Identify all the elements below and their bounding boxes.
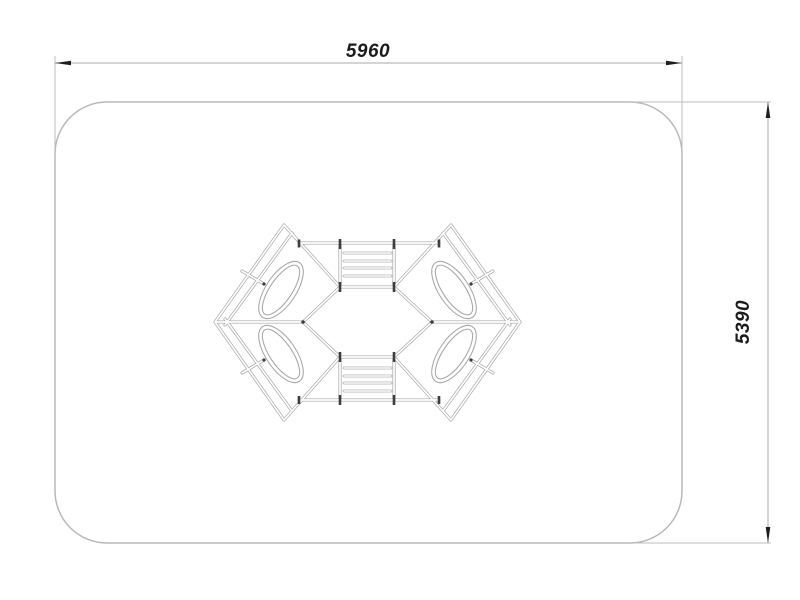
- climbing-structure-plan: [215, 225, 520, 420]
- opening-upper-right: [423, 254, 485, 325]
- safety-zone-outline: [55, 102, 682, 543]
- technical-drawing-canvas: 5960 5390: [0, 0, 800, 600]
- opening-upper-left: [250, 254, 312, 325]
- arrow-right-icon: [666, 61, 682, 66]
- opening-lower-right: [423, 318, 485, 389]
- arrow-up-icon: [766, 102, 771, 118]
- dimension-width: 5960: [55, 41, 682, 158]
- opening-lower-left: [250, 318, 312, 389]
- dimension-height-label: 5390: [733, 300, 754, 344]
- arrow-down-icon: [766, 527, 771, 543]
- ladder-rungs: [344, 253, 391, 391]
- dimension-width-label: 5960: [346, 41, 390, 62]
- dimension-height: 5390: [626, 102, 771, 543]
- arrow-left-icon: [55, 61, 71, 66]
